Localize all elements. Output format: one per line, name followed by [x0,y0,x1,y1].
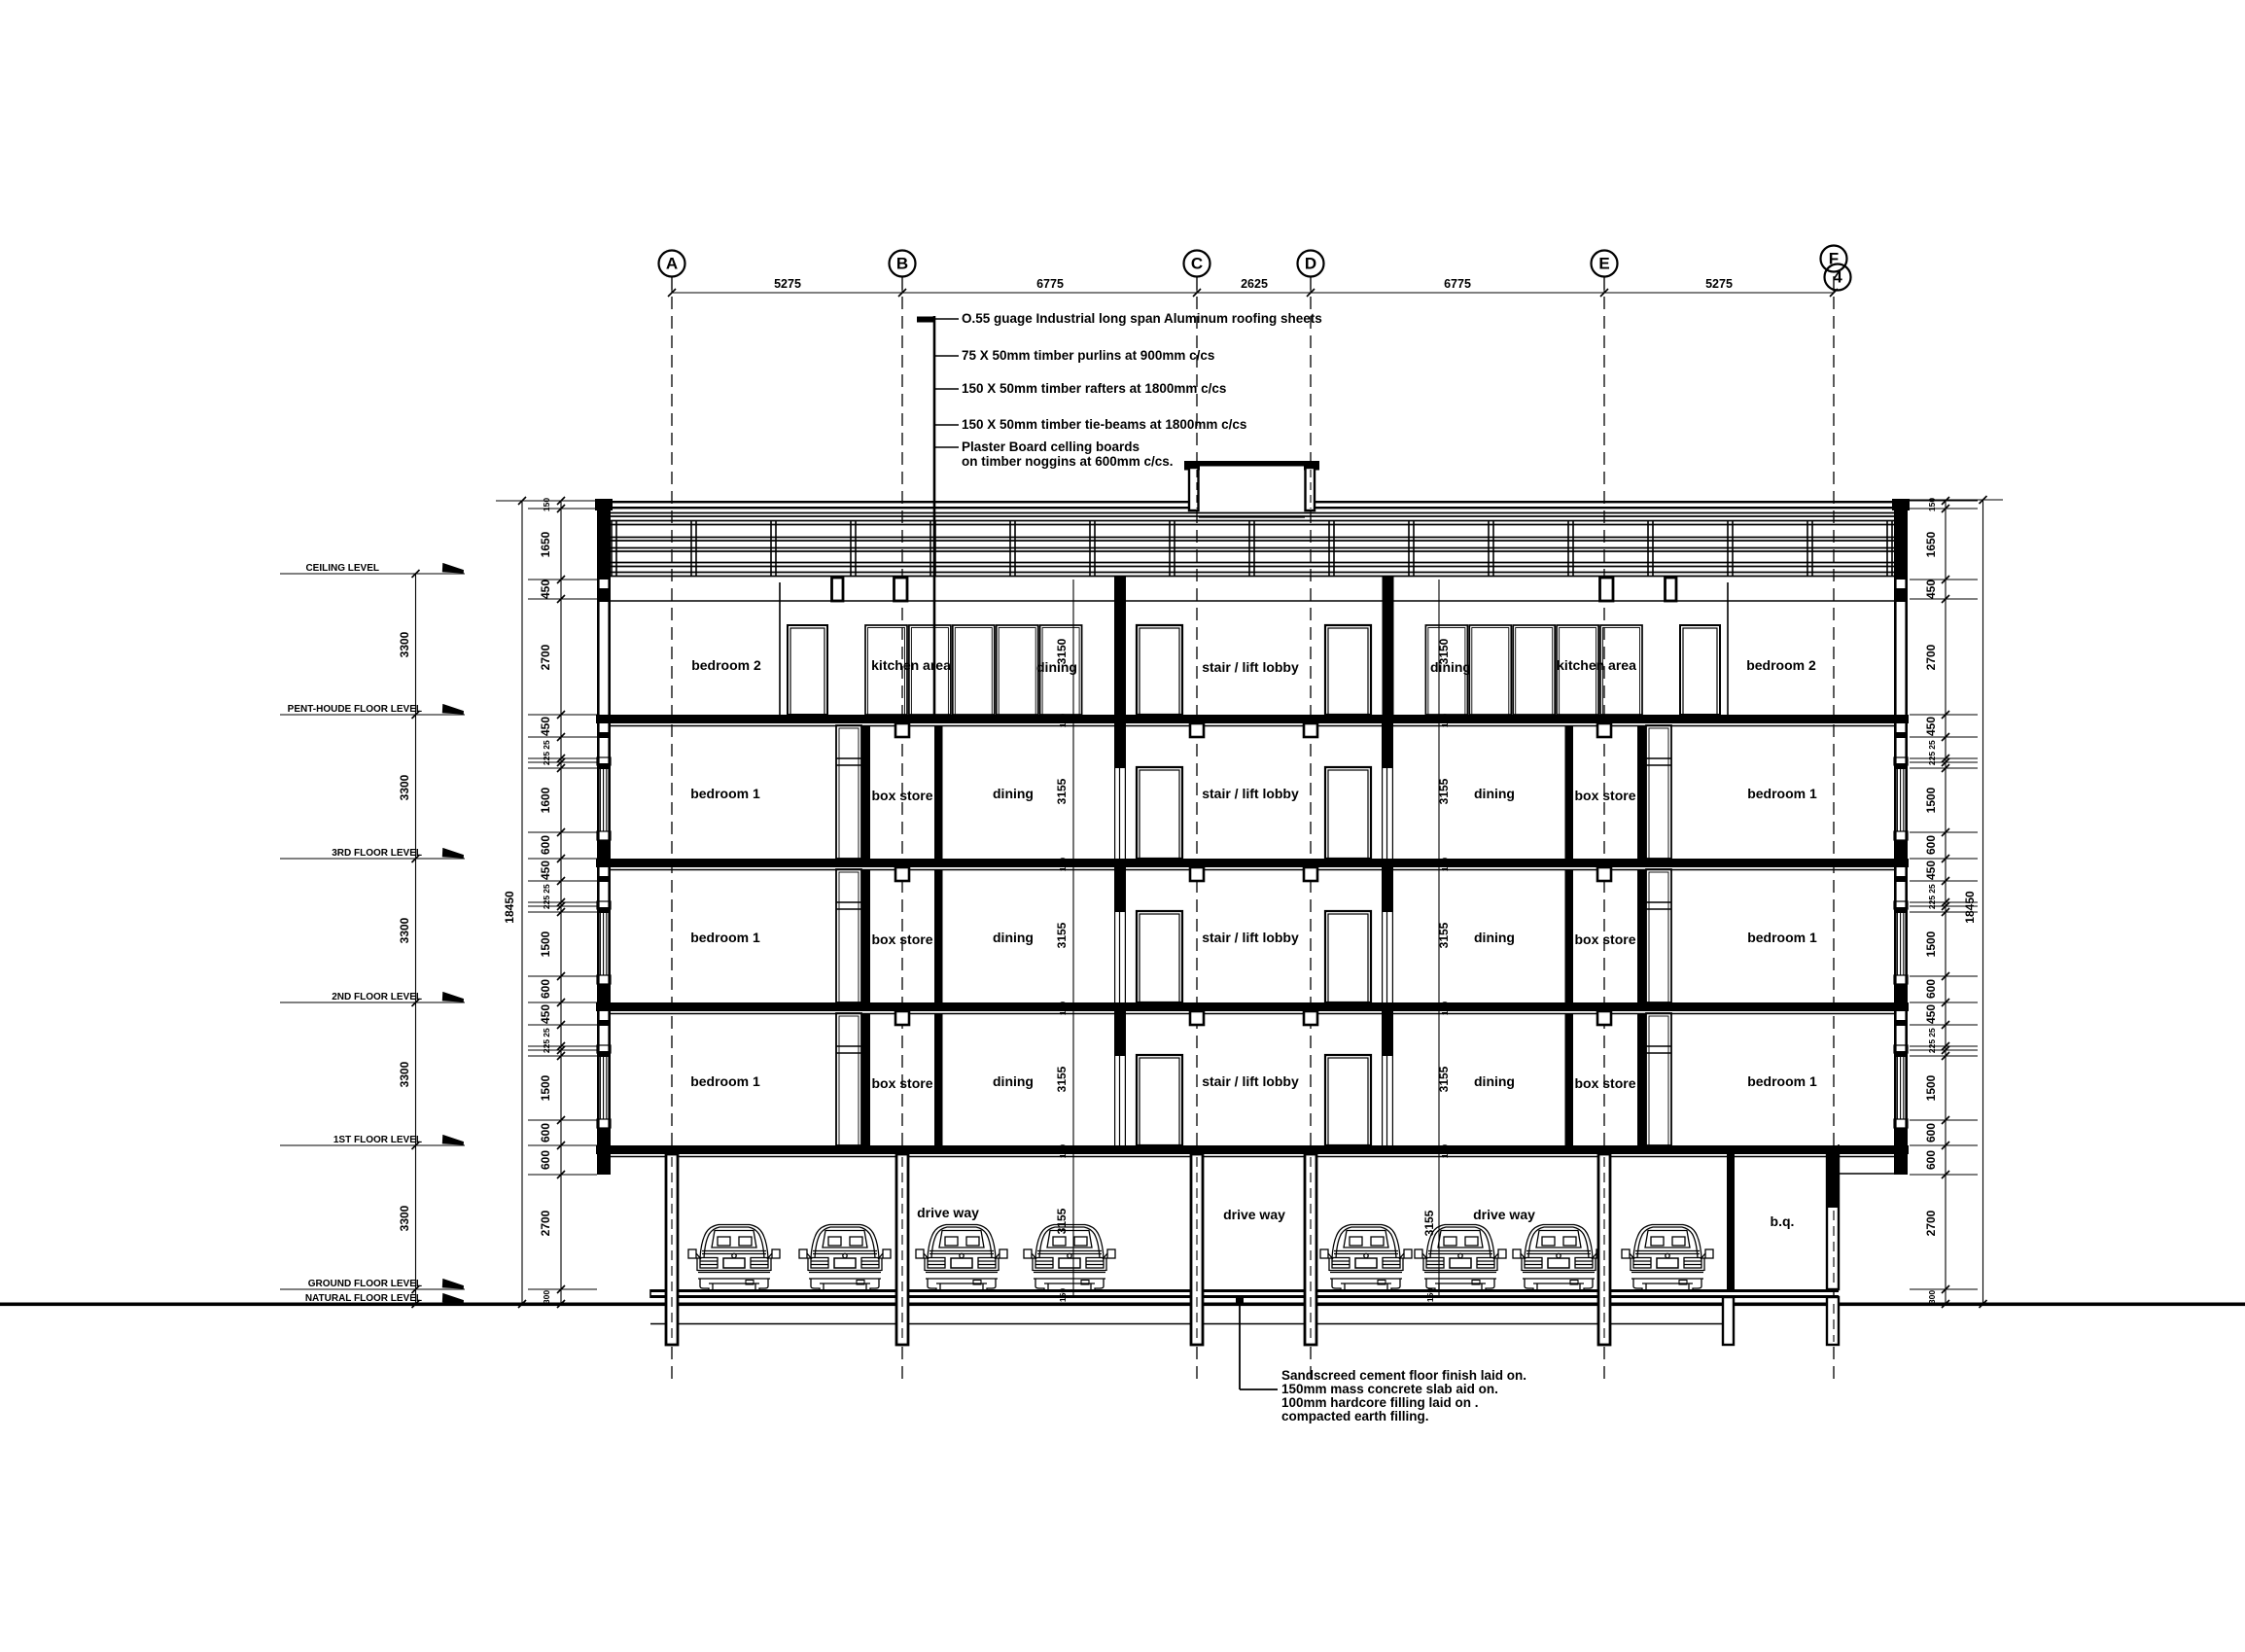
svg-text:225: 225 [542,752,551,765]
svg-text:bedroom 1: bedroom 1 [690,930,760,945]
svg-text:150 X 50mm timber tie-beams at: 150 X 50mm timber tie-beams at 1800mm c/… [962,417,1246,432]
svg-text:dining: dining [1474,930,1515,945]
svg-text:5275: 5275 [1705,277,1733,291]
svg-text:GROUND FLOOR LEVEL: GROUND FLOOR LEVEL [308,1279,422,1289]
svg-text:3300: 3300 [398,917,411,943]
svg-text:2700: 2700 [539,644,552,670]
svg-text:5275: 5275 [774,277,801,291]
svg-text:600: 600 [539,979,552,999]
svg-text:1500: 1500 [539,931,552,957]
svg-text:C: C [1191,255,1203,273]
svg-text:150: 150 [1440,714,1450,727]
svg-text:600: 600 [539,835,552,855]
svg-text:3155: 3155 [1437,1066,1451,1092]
svg-text:18450: 18450 [503,891,516,924]
svg-text:600: 600 [1924,1123,1938,1142]
svg-text:3300: 3300 [398,1061,411,1087]
svg-text:150: 150 [1440,1144,1450,1158]
svg-text:1500: 1500 [1924,1074,1938,1101]
svg-text:stair / lift lobby: stair / lift lobby [1202,930,1299,945]
svg-text:bedroom 1: bedroom 1 [690,786,760,801]
svg-text:150: 150 [1440,858,1450,871]
svg-text:450: 450 [539,717,552,736]
svg-text:PENT-HOUDE FLOOR LEVEL: PENT-HOUDE FLOOR LEVEL [288,704,422,715]
svg-text:450: 450 [539,861,552,880]
svg-text:Plaster Board celling boards: Plaster Board celling boards [962,439,1140,454]
svg-text:2700: 2700 [1924,644,1938,670]
svg-text:3155: 3155 [1055,778,1069,804]
svg-text:75 X 50mm timber purlins at 90: 75 X 50mm timber purlins at 900mm c/cs [962,348,1214,363]
svg-text:6775: 6775 [1036,277,1064,291]
svg-text:600: 600 [539,1150,552,1170]
svg-text:3300: 3300 [398,774,411,800]
svg-text:dining: dining [993,930,1034,945]
svg-text:bedroom 1: bedroom 1 [1747,786,1817,801]
svg-text:600: 600 [1924,1150,1938,1170]
svg-text:150 X 50mm timber rafters at 1: 150 X 50mm timber rafters at 1800mm c/cs [962,381,1226,396]
svg-text:18450: 18450 [1963,891,1977,924]
svg-text:A: A [666,255,678,273]
svg-text:3300: 3300 [398,631,411,657]
svg-text:225: 225 [542,896,551,909]
svg-text:dining: dining [993,786,1034,801]
svg-text:3155: 3155 [1437,778,1451,804]
svg-text:150: 150 [1058,858,1068,871]
svg-text:stair / lift lobby: stair / lift lobby [1202,786,1299,801]
svg-text:dining: dining [993,1073,1034,1089]
svg-text:dining: dining [1474,1073,1515,1089]
svg-text:box store: box store [871,788,932,803]
svg-text:drive way: drive way [1223,1207,1285,1222]
svg-text:drive way: drive way [1473,1207,1535,1222]
svg-text:B: B [896,255,908,273]
svg-text:450: 450 [1924,580,1938,599]
svg-text:600: 600 [1924,835,1938,855]
svg-text:bedroom 1: bedroom 1 [690,1073,760,1089]
svg-text:stair / lift lobby: stair / lift lobby [1202,1073,1299,1089]
svg-text:bedroom 2: bedroom 2 [1746,657,1816,673]
svg-text:25: 25 [542,740,551,750]
svg-text:150mm mass concrete slab aid o: 150mm mass concrete slab aid on. [1281,1382,1498,1396]
svg-text:300: 300 [1927,1290,1937,1304]
svg-text:compacted earth filling.: compacted earth filling. [1281,1409,1429,1424]
svg-text:3155: 3155 [1422,1210,1436,1236]
svg-text:dining: dining [1474,786,1515,801]
svg-text:1ST FLOOR LEVEL: 1ST FLOOR LEVEL [333,1135,422,1145]
svg-text:25: 25 [1927,740,1937,750]
svg-text:CEILING LEVEL: CEILING LEVEL [305,563,379,574]
svg-text:25: 25 [542,884,551,894]
svg-text:bedroom 2: bedroom 2 [691,657,761,673]
svg-text:25: 25 [542,1028,551,1037]
svg-text:kitchen area: kitchen area [1557,657,1636,673]
svg-text:bedroom 1: bedroom 1 [1747,1073,1817,1089]
svg-text:3155: 3155 [1437,922,1451,948]
svg-text:100mm hardcore filling laid on: 100mm hardcore filling laid on . [1281,1395,1479,1410]
svg-text:3155: 3155 [1055,1066,1069,1092]
svg-text:1500: 1500 [1924,931,1938,957]
svg-text:E: E [1598,255,1609,273]
svg-text:600: 600 [539,1123,552,1142]
svg-text:box store: box store [871,1075,932,1091]
svg-text:25: 25 [1927,884,1937,894]
svg-text:600: 600 [1924,979,1938,999]
svg-text:225: 225 [1927,752,1937,765]
svg-text:1650: 1650 [1924,531,1938,557]
svg-text:2ND FLOOR LEVEL: 2ND FLOOR LEVEL [332,992,422,1002]
svg-text:150: 150 [1440,1002,1450,1015]
svg-text:box store: box store [1574,788,1635,803]
svg-text:box store: box store [1574,1075,1635,1091]
svg-text:225: 225 [542,1039,551,1053]
svg-text:b.q.: b.q. [1771,1213,1795,1229]
svg-text:drive way: drive way [917,1205,979,1220]
svg-text:1500: 1500 [539,1074,552,1101]
svg-text:2625: 2625 [1241,277,1268,291]
svg-text:25: 25 [1927,1028,1937,1037]
svg-text:150: 150 [542,498,551,511]
svg-text:450: 450 [1924,1004,1938,1024]
svg-text:bedroom 1: bedroom 1 [1747,930,1817,945]
svg-text:box store: box store [1574,931,1635,947]
svg-text:3RD FLOOR LEVEL: 3RD FLOOR LEVEL [332,848,422,859]
svg-text:450: 450 [539,580,552,599]
svg-text:450: 450 [1924,717,1938,736]
svg-text:on timber noggins at 600mm c/c: on timber noggins at 600mm c/cs. [962,454,1174,469]
svg-text:225: 225 [1927,1039,1937,1053]
svg-text:450: 450 [1924,861,1938,880]
svg-text:3155: 3155 [1055,1208,1069,1234]
svg-text:O.55 guage Industrial long spa: O.55 guage Industrial long span Aluminum… [962,311,1322,326]
svg-text:300: 300 [542,1290,551,1304]
svg-text:2700: 2700 [539,1210,552,1236]
svg-text:4: 4 [1833,268,1842,287]
svg-text:stair / lift lobby: stair / lift lobby [1202,659,1299,675]
svg-text:150: 150 [1058,1144,1068,1158]
svg-text:1650: 1650 [539,531,552,557]
svg-text:225: 225 [1927,896,1937,909]
svg-text:3300: 3300 [398,1205,411,1231]
svg-text:1600: 1600 [539,787,552,813]
svg-text:3150: 3150 [1437,638,1451,664]
svg-text:D: D [1305,255,1316,273]
svg-text:kitchen area: kitchen area [871,657,951,673]
svg-text:450: 450 [539,1004,552,1024]
svg-text:2700: 2700 [1924,1210,1938,1236]
svg-text:NATURAL FLOOR LEVEL: NATURAL FLOOR LEVEL [305,1293,422,1304]
svg-text:3155: 3155 [1055,922,1069,948]
svg-text:150: 150 [1058,1002,1068,1015]
svg-text:box store: box store [871,931,932,947]
svg-text:150: 150 [1058,714,1068,727]
svg-text:3150: 3150 [1055,638,1069,664]
svg-text:6775: 6775 [1444,277,1471,291]
svg-text:1500: 1500 [1924,787,1938,813]
svg-text:Sandscreed cement floor finish: Sandscreed cement floor finish laid on. [1281,1368,1526,1383]
